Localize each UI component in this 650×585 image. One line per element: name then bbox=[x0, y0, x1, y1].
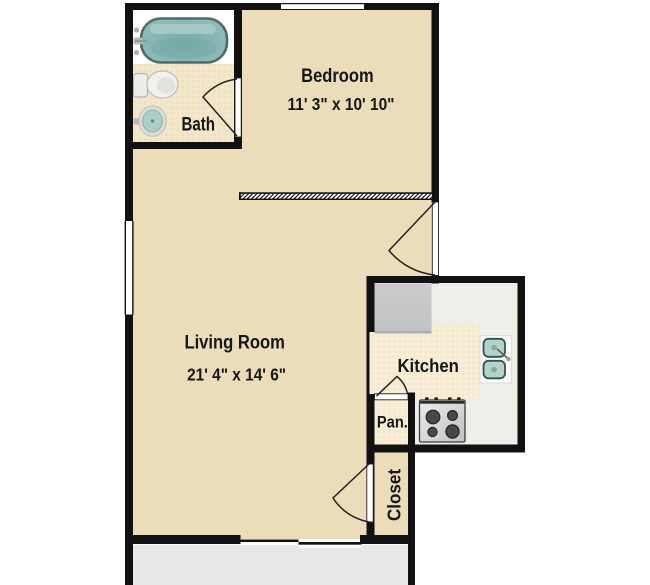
svg-text:Pan.: Pan. bbox=[377, 412, 408, 431]
svg-text:Closet: Closet bbox=[383, 469, 404, 521]
svg-text:Living Room: Living Room bbox=[184, 332, 285, 353]
svg-text:11' 3" x 10' 10": 11' 3" x 10' 10" bbox=[288, 94, 395, 114]
svg-text:Bath: Bath bbox=[181, 114, 215, 135]
svg-text:Kitchen: Kitchen bbox=[397, 356, 459, 376]
svg-text:Bedroom: Bedroom bbox=[301, 66, 374, 87]
svg-text:21' 4" x 14' 6": 21' 4" x 14' 6" bbox=[187, 365, 286, 385]
